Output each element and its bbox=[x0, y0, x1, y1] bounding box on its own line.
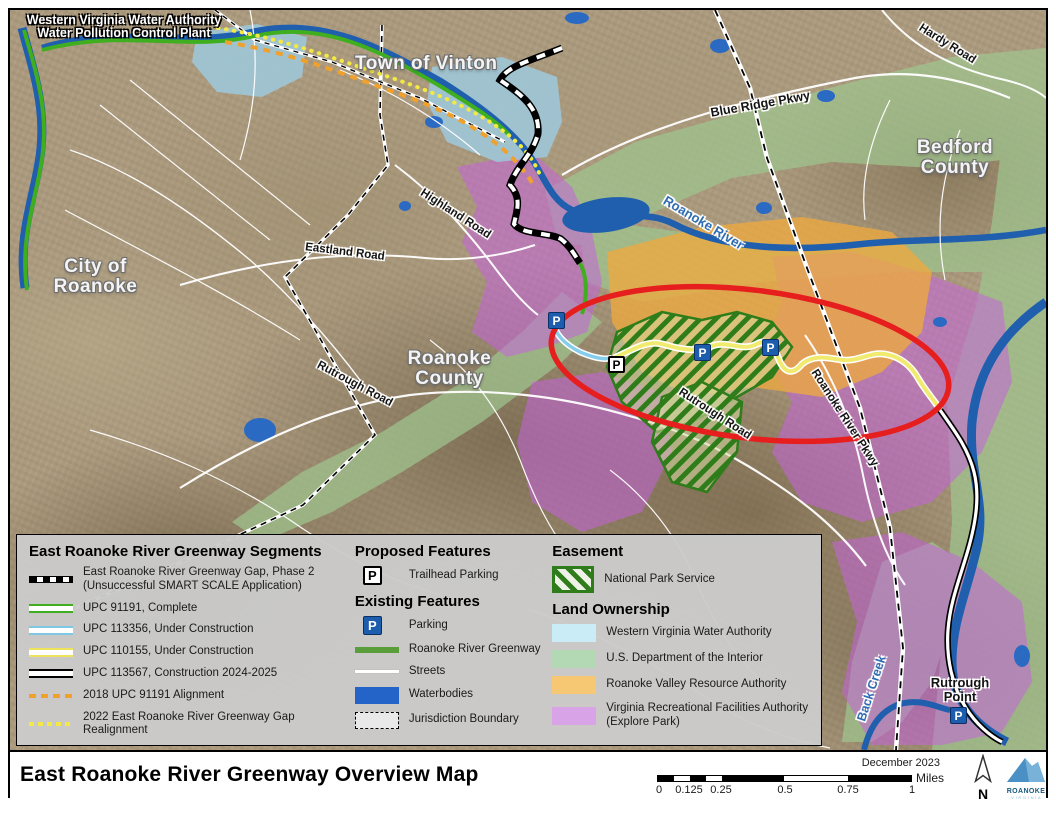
legend-item: Streets bbox=[355, 665, 552, 679]
scale-tick-labels: 0 0.125 0.25 0.5 0.75 1 bbox=[657, 784, 912, 797]
parking-marker: P bbox=[950, 707, 967, 724]
legend-item: UPC 91191, Complete bbox=[29, 602, 355, 616]
yellow-double-line-swatch bbox=[29, 648, 73, 657]
logo-text: ROANOKE bbox=[1004, 788, 1048, 795]
scale-unit-label: Miles bbox=[916, 771, 944, 785]
parking-marker: P bbox=[694, 344, 711, 361]
north-arrow-icon bbox=[968, 754, 998, 784]
legend-proposed-title: Proposed Features bbox=[355, 543, 552, 560]
vrfa-fill-swatch bbox=[552, 707, 596, 725]
legend-segments-column: East Roanoke River Greenway Segments Eas… bbox=[29, 543, 355, 739]
legend-item: P Parking bbox=[355, 616, 552, 635]
parking-marker: P bbox=[548, 312, 565, 329]
map-canvas: P P P P P Western Virginia Water Authori… bbox=[10, 10, 1046, 750]
legend-panel: East Roanoke River Greenway Segments Eas… bbox=[16, 534, 822, 746]
scale-bar bbox=[657, 775, 912, 782]
legend-item: 2018 UPC 91191 Alignment bbox=[29, 689, 355, 703]
trailhead-parking-marker: P bbox=[608, 356, 625, 373]
legend-item: U.S. Department of the Interior bbox=[552, 650, 811, 668]
legend-item: UPC 113567, Construction 2024-2025 bbox=[29, 667, 355, 681]
legend-ownership-column: Easement National Park Service Land Owne… bbox=[552, 543, 811, 739]
legend-item: Jurisdiction Boundary bbox=[355, 712, 552, 729]
trailhead-parking-icon: P bbox=[363, 566, 382, 585]
legend-item: UPC 113356, Under Construction bbox=[29, 623, 355, 637]
legend-land-ownership-title: Land Ownership bbox=[552, 601, 811, 618]
map-date: December 2023 bbox=[657, 757, 940, 769]
legend-item: East Roanoke River Greenway Gap, Phase 2… bbox=[29, 566, 355, 594]
roanoke-logo-mountain-icon bbox=[1005, 755, 1047, 783]
gap-dashed-line-swatch bbox=[29, 576, 73, 583]
legend-segments-title: East Roanoke River Greenway Segments bbox=[29, 543, 355, 560]
legend-item: P Trailhead Parking bbox=[355, 566, 552, 585]
wvwa-fill-swatch bbox=[552, 624, 596, 642]
usdoi-fill-swatch bbox=[552, 650, 596, 668]
legend-item: 2022 East Roanoke River Greenway Gap Rea… bbox=[29, 711, 355, 739]
logo-subtext: V I R G I N I A bbox=[1004, 795, 1048, 800]
nps-hatch-swatch bbox=[552, 566, 594, 593]
blue-double-line-swatch bbox=[29, 626, 73, 635]
legend-item: UPC 110155, Under Construction bbox=[29, 645, 355, 659]
legend-easement-title: Easement bbox=[552, 543, 811, 560]
rvra-fill-swatch bbox=[552, 676, 596, 694]
black-cased-line-swatch bbox=[29, 669, 73, 678]
greenway-line-swatch bbox=[355, 647, 399, 653]
north-arrow: N bbox=[967, 754, 999, 802]
map-title: East Roanoke River Greenway Overview Map bbox=[20, 763, 479, 787]
legend-item: Roanoke River Greenway bbox=[355, 643, 552, 657]
parking-marker: P bbox=[762, 339, 779, 356]
footer-bar: East Roanoke River Greenway Overview Map… bbox=[10, 750, 1046, 798]
yellow-dotted-line-swatch bbox=[29, 722, 73, 726]
map-sheet: P P P P P Western Virginia Water Authori… bbox=[8, 8, 1048, 798]
legend-item: Virginia Recreational Facilities Authori… bbox=[552, 702, 811, 730]
legend-item: Roanoke Valley Resource Authority bbox=[552, 676, 811, 694]
jurisdiction-boundary-swatch bbox=[355, 712, 399, 729]
legend-item: Western Virginia Water Authority bbox=[552, 624, 811, 642]
parking-icon: P bbox=[363, 616, 382, 635]
land-wvwa-ponds bbox=[192, 24, 562, 162]
orange-dashed-line-swatch bbox=[29, 694, 73, 698]
streets-line-swatch bbox=[355, 670, 399, 673]
waterbodies-swatch bbox=[355, 687, 399, 704]
legend-item: Waterbodies bbox=[355, 687, 552, 704]
legend-item: National Park Service bbox=[552, 566, 811, 593]
legend-features-column: Proposed Features P Trailhead Parking Ex… bbox=[355, 543, 552, 739]
green-double-line-swatch bbox=[29, 604, 73, 613]
roanoke-logo: ROANOKE V I R G I N I A bbox=[1004, 755, 1048, 800]
legend-existing-title: Existing Features bbox=[355, 593, 552, 610]
north-label: N bbox=[967, 786, 999, 802]
